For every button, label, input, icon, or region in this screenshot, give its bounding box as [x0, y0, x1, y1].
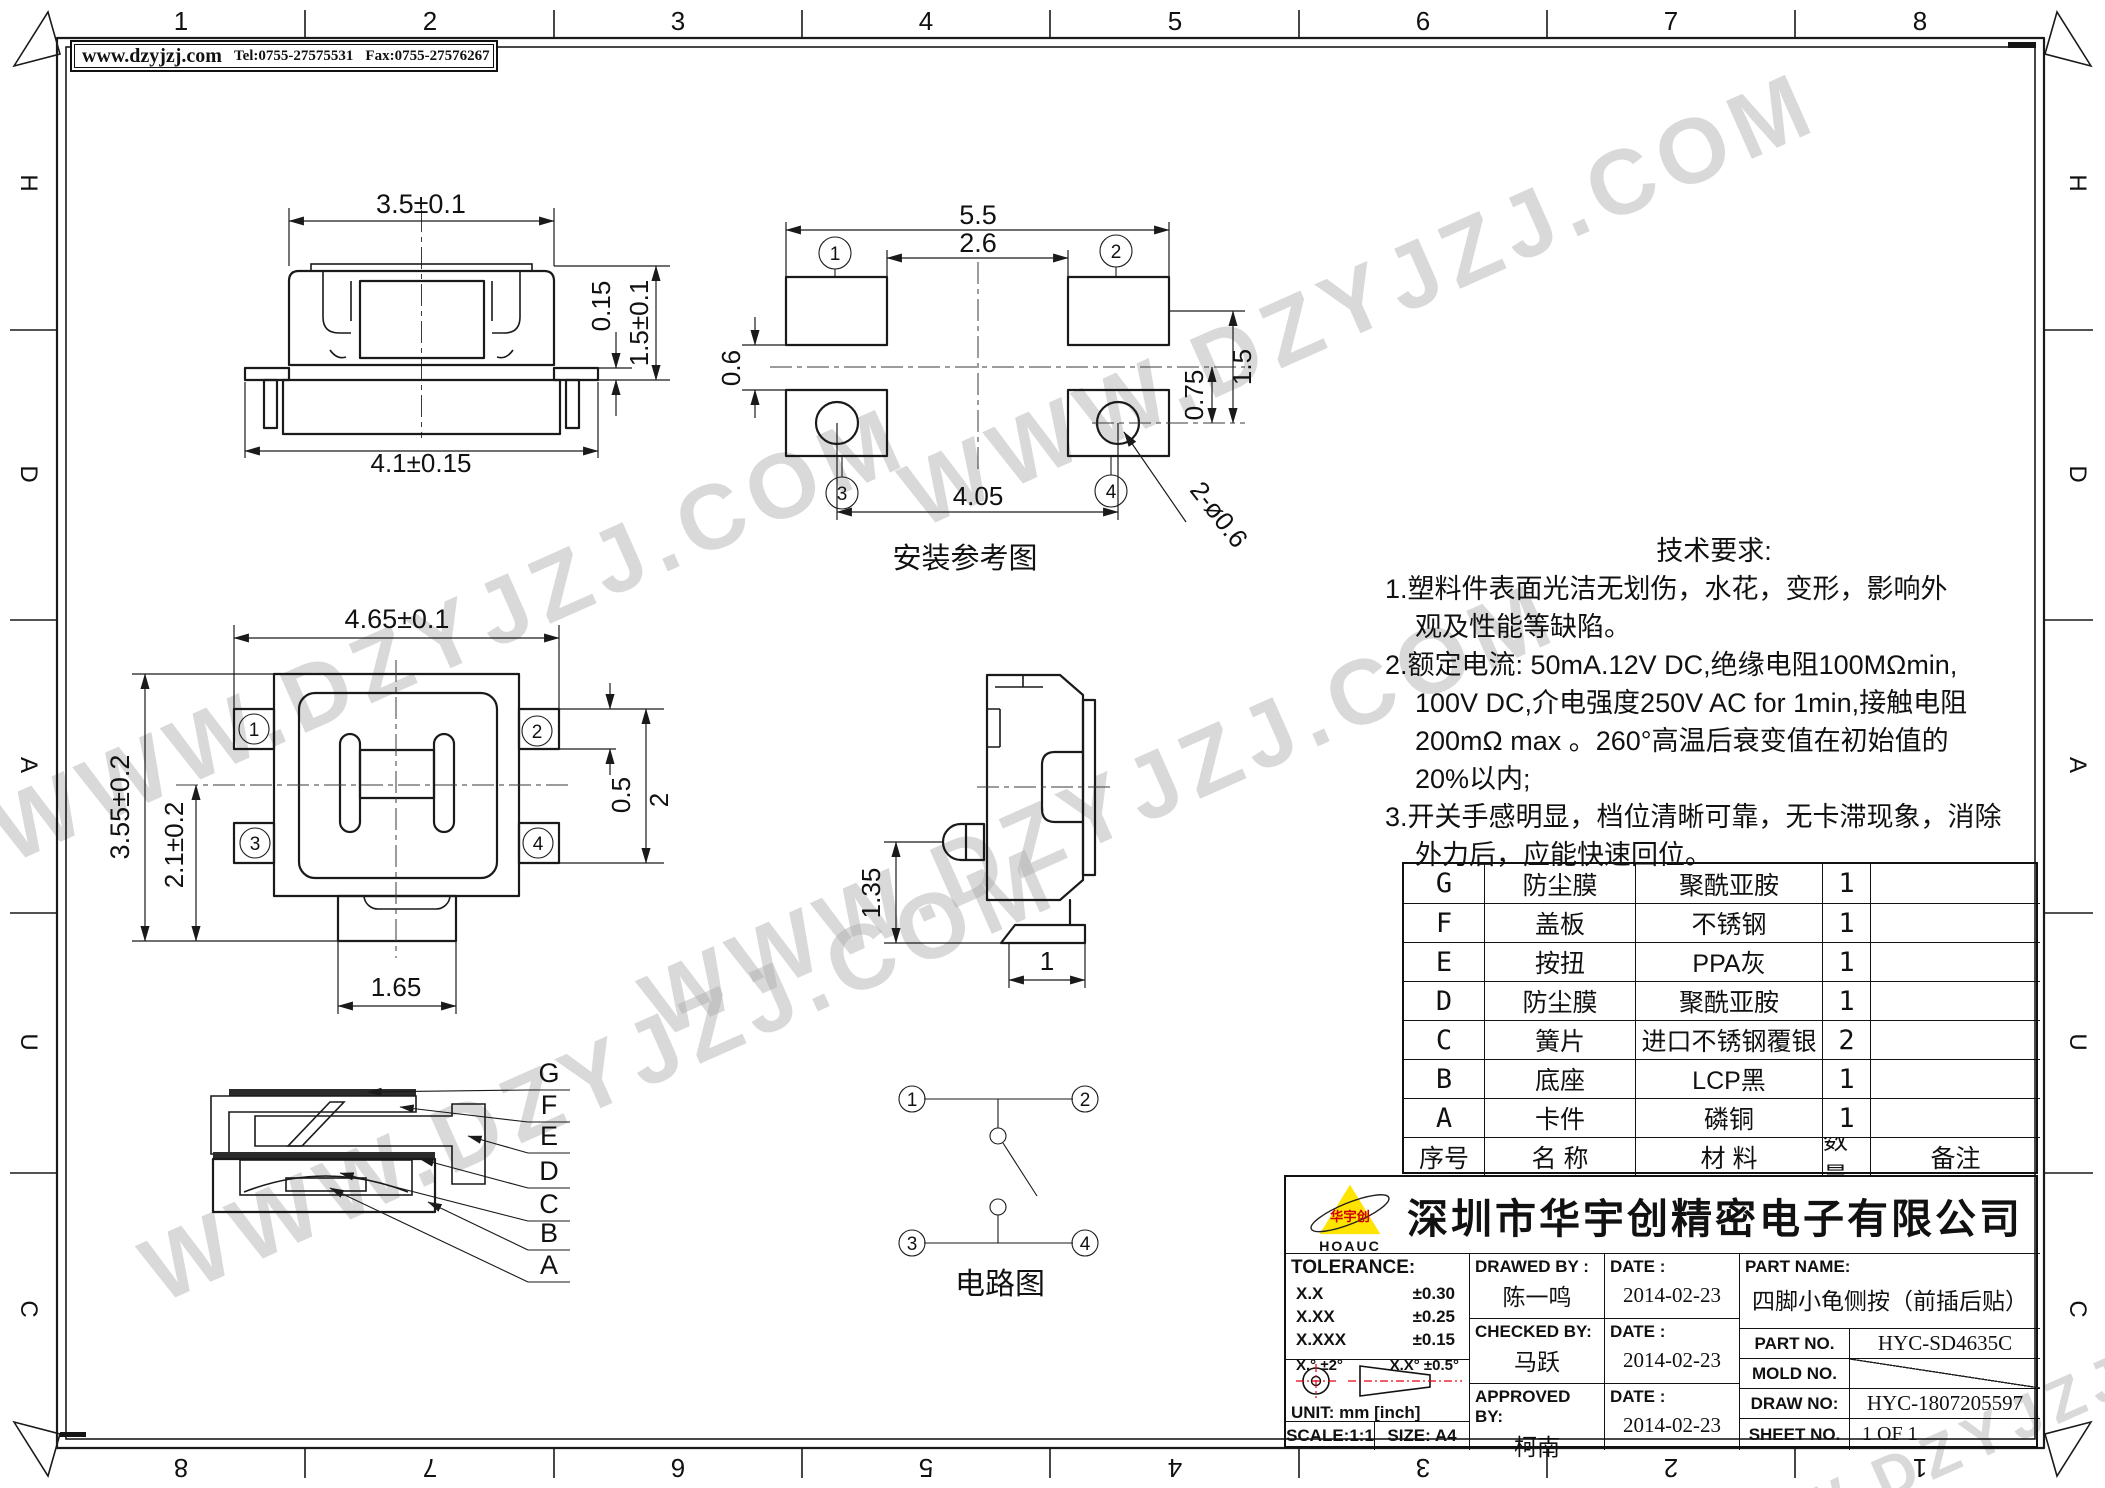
zone-col: 6	[1400, 6, 1446, 37]
drawing-sheet: WWW.DZYJZJ.COM WWW.DZYJZJ.COM WWW.DZYJZJ…	[0, 0, 2105, 1488]
approved-name: 柯南	[1470, 1430, 1604, 1460]
sheet-no-value: 1 OF 1	[1850, 1419, 2040, 1450]
svg-text:2: 2	[1111, 242, 1122, 263]
parts-table: G防尘膜聚酰亚胺1 F盖板不锈钢1 E按扭PPA灰1 D防尘膜聚酰亚胺1 C簧片…	[1402, 862, 2038, 1174]
dim-pads-inner: 2.6	[959, 228, 997, 258]
dim-top-width: 4.65±0.1	[345, 604, 450, 634]
bom-no: C	[1404, 1020, 1484, 1059]
dim-pads-overall: 5.5	[959, 200, 997, 230]
bom-name: 按扭	[1484, 942, 1635, 981]
scale-cell: SCALE:1:1	[1286, 1422, 1375, 1450]
bom-material: 进口不锈钢覆银	[1635, 1020, 1822, 1059]
checked-by-cell: CHECKED BY: 马跃	[1470, 1319, 1605, 1384]
circuit-pin-4: 4	[1072, 1230, 1098, 1256]
zone-col: 8	[158, 1452, 204, 1483]
bom-material: PPA灰	[1635, 942, 1822, 981]
svg-text:2: 2	[1080, 1090, 1091, 1111]
zone-col: 7	[407, 1452, 453, 1483]
section-label-F: F	[541, 1090, 558, 1120]
bom-qty: 2	[1822, 1020, 1870, 1059]
bom-remark	[1870, 1020, 2040, 1059]
dim-pads-span: 4.05	[953, 481, 1004, 511]
zone-col: 5	[1152, 6, 1198, 37]
svg-text:1: 1	[249, 720, 260, 741]
zone-col: 4	[903, 6, 949, 37]
svg-text:3: 3	[250, 834, 261, 855]
pad-pin-3: 3	[826, 456, 858, 509]
section-label-C: C	[539, 1189, 559, 1219]
bom-no: E	[1404, 942, 1484, 981]
section-label-E: E	[540, 1121, 558, 1151]
circuit-pin-1: 1	[899, 1086, 925, 1112]
side-view: 1.35 1	[856, 675, 1111, 988]
draw-no-label: DRAW NO:	[1740, 1389, 1850, 1419]
top-pin-3: 3	[240, 828, 270, 858]
logo-en: HOAUC	[1319, 1239, 1381, 1255]
tech-line: 2.额定电流: 50mA.12V DC,绝缘电阻100MΩmin,	[1385, 646, 2043, 684]
dim-pads-half: 0.75	[1179, 370, 1209, 421]
dim-pads-gap: 0.6	[716, 350, 746, 386]
bom-qty: 1	[1822, 981, 1870, 1020]
tolerance-box: TOLERANCE: X.X±0.30 X.XX±0.25 X.XXX±0.15…	[1286, 1254, 1470, 1360]
zone-row: U	[14, 1026, 42, 1058]
section-view: G F E D C B A	[211, 1058, 570, 1282]
tech-title: 技术要求:	[1385, 532, 2043, 570]
zone-col: 3	[1400, 1452, 1446, 1483]
bom-material: 不锈钢	[1635, 903, 1822, 942]
svg-text:4: 4	[1106, 482, 1117, 503]
micro-text-mark	[2008, 42, 2036, 48]
drawn-by-cell: DRAWED BY : 陈一鸣	[1470, 1254, 1605, 1319]
bom-name: 卡件	[1484, 1098, 1635, 1137]
bom-name: 簧片	[1484, 1020, 1635, 1059]
circuit-caption: 电路图	[955, 1268, 1045, 1301]
section-label-A: A	[540, 1250, 558, 1280]
bom-remark	[1870, 903, 2040, 942]
zone-row: A	[2063, 749, 2091, 781]
pad-pin-2: 2	[1100, 235, 1132, 277]
bom-remark	[1870, 864, 2040, 903]
checked-name: 马跃	[1470, 1345, 1604, 1375]
zone-col: 2	[1648, 1452, 1694, 1483]
section-label-G: G	[538, 1058, 559, 1088]
dim-side-height: 1.35	[856, 868, 886, 919]
zone-row: C	[14, 1293, 42, 1325]
approved-date-cell: DATE : 2014-02-23	[1605, 1384, 1740, 1450]
section-label-D: D	[539, 1156, 559, 1186]
zone-col: 8	[1897, 6, 1943, 37]
sheet-no-label: SHEET NO.	[1740, 1419, 1850, 1450]
contact-header: www.dzyjzj.com Tel:0755-27575531 Fax:075…	[70, 40, 498, 72]
bom-material: 磷铜	[1635, 1098, 1822, 1137]
tech-line: 3.开关手感明显，档位清晰可靠，无卡滞现象，消除	[1385, 798, 2043, 836]
zone-col: 1	[1897, 1452, 1943, 1483]
bom-no: A	[1404, 1098, 1484, 1137]
svg-text:3: 3	[837, 484, 848, 505]
bom-remark	[1870, 942, 2040, 981]
top-pin-4: 4	[523, 828, 553, 858]
date-label: DATE :	[1605, 1384, 1739, 1410]
bom-material: 聚酰亚胺	[1635, 864, 1822, 903]
tech-line: 100V DC,介电强度250V AC for 1min,接触电阻	[1385, 684, 2043, 722]
front-view: 3.5±0.1 0.15 1.5±0.1 4.1±0.15	[245, 189, 670, 478]
dim-front-plate: 0.15	[586, 281, 616, 332]
bom-name: 底座	[1484, 1059, 1635, 1098]
dim-top-height: 3.55±0.2	[105, 755, 135, 860]
part-no-label: PART NO.	[1740, 1329, 1850, 1359]
svg-text:4: 4	[533, 834, 544, 855]
zone-row: H	[2063, 167, 2091, 199]
drawn-name: 陈一鸣	[1470, 1280, 1604, 1310]
dim-front-top: 3.5±0.1	[376, 189, 466, 219]
tech-line: 200mΩ max 。260°高温后衰变值在初始值的	[1385, 722, 2043, 760]
mold-no-value	[1850, 1359, 2040, 1389]
pad-pin-1: 1	[819, 237, 851, 277]
bom-name: 防尘膜	[1484, 981, 1635, 1020]
drawn-date-cell: DATE : 2014-02-23	[1605, 1254, 1740, 1319]
dim-pads-pitch: 1.5	[1227, 349, 1257, 385]
tech-line: 20%以内;	[1385, 760, 2043, 798]
checked-date-cell: DATE : 2014-02-23	[1605, 1319, 1740, 1384]
bom-header-qty: 数量	[1822, 1137, 1870, 1176]
svg-text:1: 1	[830, 244, 841, 265]
circuit-pin-3: 3	[899, 1230, 925, 1256]
zone-col: 3	[655, 6, 701, 37]
svg-text:3: 3	[907, 1234, 918, 1255]
film-G	[229, 1089, 416, 1096]
section-label-B: B	[540, 1218, 558, 1248]
spring-arm	[288, 1102, 344, 1146]
bom-header-name: 名 称	[1484, 1137, 1635, 1176]
projection-box: UNIT: mm [inch]	[1286, 1360, 1470, 1422]
bom-no: G	[1404, 864, 1484, 903]
date-label: DATE :	[1605, 1319, 1739, 1345]
drawn-label: DRAWED BY :	[1470, 1254, 1604, 1280]
clip-A	[286, 1178, 366, 1191]
pad-pin-4: 4	[1095, 456, 1127, 507]
bom-qty: 1	[1822, 1098, 1870, 1137]
zone-row: U	[2063, 1026, 2091, 1058]
svg-text:2: 2	[532, 722, 543, 743]
approved-by-cell: APPROVED BY: 柯南	[1470, 1384, 1605, 1450]
dim-top-lower: 2.1±0.2	[159, 802, 189, 889]
svg-text:1: 1	[907, 1090, 918, 1111]
company-name: 深圳市华宇创精密电子有限公司	[1286, 1177, 2040, 1253]
dim-top-pitch: 2	[644, 793, 674, 807]
part-name-cell: PART NAME: 四脚小龟侧按（前插后贴）	[1740, 1254, 2040, 1329]
circuit-diagram: 1 2 3 4 电路图	[899, 1086, 1098, 1301]
draw-no-value: HYC-1807205597	[1850, 1389, 2040, 1419]
tolerance-title: TOLERANCE:	[1286, 1254, 1469, 1282]
bom-remark	[1870, 1059, 2040, 1098]
logo-cn: 华宇创	[1330, 1208, 1370, 1224]
website: www.dzyjzj.com	[82, 45, 222, 68]
tol-label: X.XX	[1296, 1305, 1335, 1328]
zone-col: 1	[158, 6, 204, 37]
tech-requirements: 技术要求: 1.塑料件表面光洁无划伤，水花，变形，影响外 观及性能等缺陷。 2.…	[1385, 532, 2043, 874]
zone-col: 4	[1152, 1452, 1198, 1483]
projection-symbol-icon	[1290, 1362, 1466, 1400]
tech-line: 观及性能等缺陷。	[1385, 608, 2043, 646]
tol-value: ±0.30	[1413, 1282, 1455, 1305]
size-cell: SIZE: A4	[1375, 1422, 1470, 1450]
bom-material: 聚酰亚胺	[1635, 981, 1822, 1020]
bom-qty: 1	[1822, 1059, 1870, 1098]
top-pin-1: 1	[239, 714, 269, 744]
approved-date: 2014-02-23	[1605, 1410, 1739, 1440]
bom-header-remark: 备注	[1870, 1137, 2040, 1176]
base-B	[213, 1159, 435, 1212]
dim-front-height: 1.5±0.1	[624, 280, 654, 367]
zone-row: D	[14, 458, 42, 490]
dim-front-bottom: 4.1±0.15	[370, 448, 471, 478]
tol-value: ±0.25	[1413, 1305, 1455, 1328]
part-no-value: HYC-SD4635C	[1850, 1329, 2040, 1359]
dim-top-pin: 0.5	[606, 777, 636, 813]
bom-no: B	[1404, 1059, 1484, 1098]
zone-row: H	[14, 167, 42, 199]
bom-header-no: 序号	[1404, 1137, 1484, 1176]
approved-label: APPROVED BY:	[1470, 1384, 1604, 1430]
part-name-value: 四脚小龟侧按（前插后贴）	[1740, 1280, 2040, 1318]
tol-label: X.XXX	[1296, 1328, 1346, 1351]
dim-pads-holes: 2-ø0.6	[1184, 476, 1254, 554]
title-block: 华宇创 HOAUC 深圳市华宇创精密电子有限公司 TOLERANCE: X.X±…	[1284, 1175, 2038, 1448]
dim-side-foot: 1	[1040, 946, 1054, 976]
fax: Fax:0755-27576267	[365, 48, 489, 65]
bom-name: 防尘膜	[1484, 864, 1635, 903]
part-name-label: PART NAME:	[1740, 1254, 2040, 1280]
bom-name: 盖板	[1484, 903, 1635, 942]
svg-text:4: 4	[1080, 1234, 1091, 1255]
bom-qty: 1	[1822, 864, 1870, 903]
company-row: 华宇创 HOAUC 深圳市华宇创精密电子有限公司	[1286, 1177, 2040, 1254]
tol-label: X.X	[1296, 1282, 1323, 1305]
zone-col: 2	[407, 6, 453, 37]
zone-row: D	[2063, 458, 2091, 490]
bom-material: LCP黑	[1635, 1059, 1822, 1098]
date-label: DATE :	[1605, 1254, 1739, 1280]
zone-col: 7	[1648, 6, 1694, 37]
bom-remark	[1870, 1098, 2040, 1137]
circuit-pin-2: 2	[1072, 1086, 1098, 1112]
tol-value: ±0.15	[1413, 1328, 1455, 1351]
drawn-date: 2014-02-23	[1605, 1280, 1739, 1310]
micro-text-mark	[60, 1432, 86, 1437]
mold-no-label: MOLD NO.	[1740, 1359, 1850, 1389]
zone-col: 6	[655, 1452, 701, 1483]
checked-date: 2014-02-23	[1605, 1345, 1739, 1375]
telephone: Tel:0755-27575531	[234, 48, 353, 65]
checked-label: CHECKED BY:	[1470, 1319, 1604, 1345]
pad-layout-caption: 安装参考图	[892, 542, 1037, 575]
tech-line: 1.塑料件表面光洁无划伤，水花，变形，影响外	[1385, 570, 2043, 608]
bom-no: F	[1404, 903, 1484, 942]
top-view: 4.65±0.1 3.55±0.2 2.1±0.2 0.5 2 1.65 1 2…	[105, 604, 674, 1014]
bom-remark	[1870, 981, 2040, 1020]
dim-top-stem: 1.65	[371, 972, 422, 1002]
bom-qty: 1	[1822, 942, 1870, 981]
company-logo: 华宇创 HOAUC	[1302, 1179, 1398, 1255]
top-pin-2: 2	[522, 716, 552, 746]
zone-row: C	[2063, 1293, 2091, 1325]
zone-col: 5	[903, 1452, 949, 1483]
bom-qty: 1	[1822, 903, 1870, 942]
bom-header-material: 材 料	[1635, 1137, 1822, 1176]
zone-row: A	[14, 749, 42, 781]
pad-layout-view: 5.5 2.6 0.6 1.5 0.75 4.05 2-ø0.6 1 2 3 4…	[716, 200, 1257, 575]
bom-no: D	[1404, 981, 1484, 1020]
